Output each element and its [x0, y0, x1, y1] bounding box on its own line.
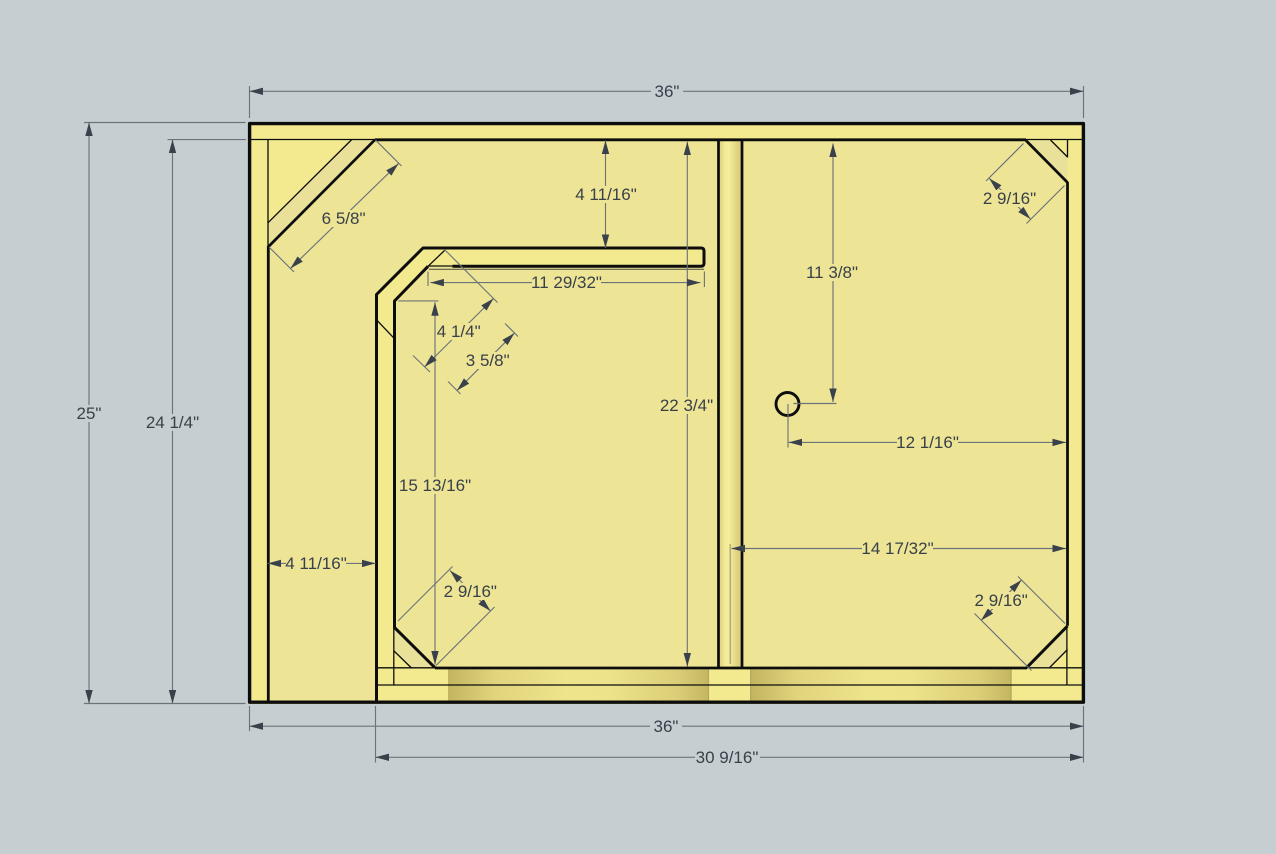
svg-text:11 3/8": 11 3/8": [806, 263, 858, 282]
svg-text:2 9/16": 2 9/16": [444, 582, 497, 601]
svg-text:4 11/16": 4 11/16": [575, 185, 637, 204]
svg-text:2 9/16": 2 9/16": [975, 591, 1028, 610]
svg-text:25": 25": [77, 404, 102, 423]
svg-text:4 1/4": 4 1/4": [437, 322, 481, 341]
svg-text:14 17/32": 14 17/32": [861, 539, 933, 558]
svg-text:4 11/16": 4 11/16": [285, 554, 347, 573]
svg-text:24 1/4": 24 1/4": [146, 413, 199, 432]
svg-text:36": 36": [654, 717, 679, 736]
svg-text:30 9/16": 30 9/16": [696, 748, 759, 767]
svg-text:22 3/4": 22 3/4": [660, 396, 713, 415]
svg-text:36": 36": [655, 82, 680, 101]
svg-text:12 1/16": 12 1/16": [896, 433, 959, 452]
svg-text:11 29/32": 11 29/32": [531, 273, 602, 292]
svg-text:3 5/8": 3 5/8": [466, 351, 510, 370]
svg-text:15 13/16": 15 13/16": [399, 476, 471, 495]
svg-text:2 9/16": 2 9/16": [983, 189, 1036, 208]
svg-text:6 5/8": 6 5/8": [322, 209, 366, 228]
